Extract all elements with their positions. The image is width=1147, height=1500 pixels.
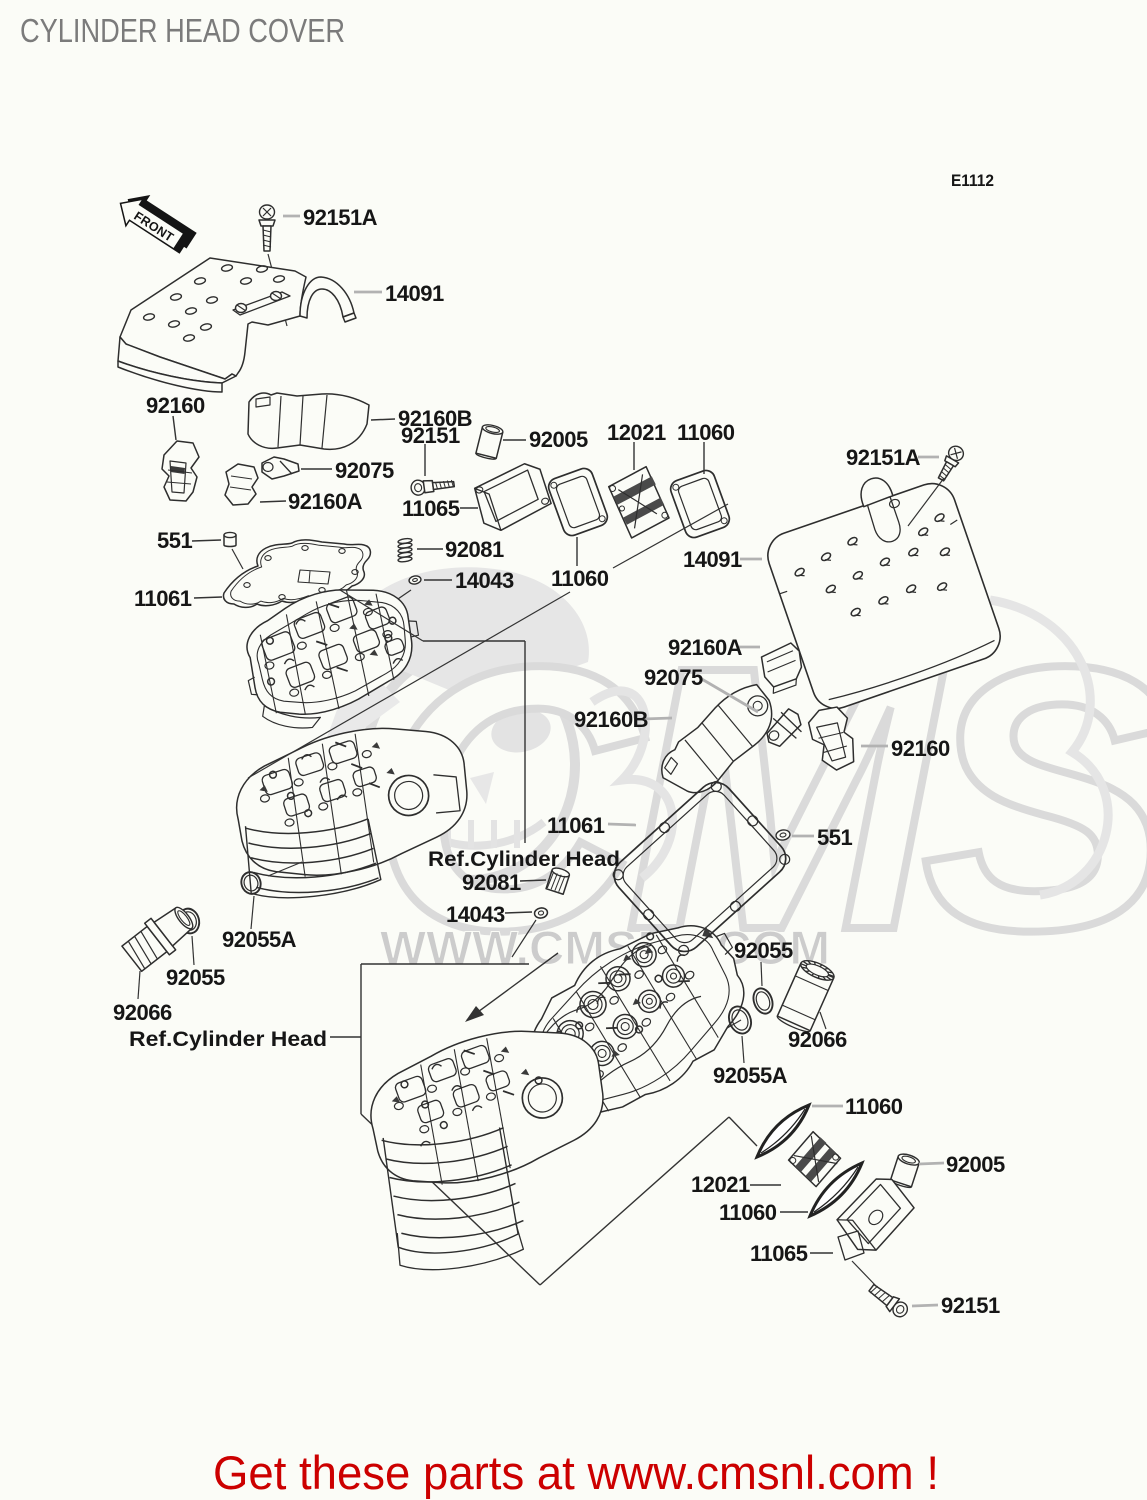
svg-text:92055A: 92055A bbox=[222, 927, 297, 952]
svg-text:92081: 92081 bbox=[462, 870, 521, 895]
svg-text:92151: 92151 bbox=[401, 423, 460, 448]
svg-text:92160A: 92160A bbox=[288, 489, 363, 514]
svg-text:11065: 11065 bbox=[402, 496, 460, 521]
svg-text:551: 551 bbox=[817, 825, 852, 850]
svg-text:92055: 92055 bbox=[734, 938, 793, 963]
svg-text:92005: 92005 bbox=[946, 1152, 1005, 1177]
svg-text:92066: 92066 bbox=[113, 1000, 172, 1025]
svg-text:E1112: E1112 bbox=[951, 171, 994, 190]
svg-text:14043: 14043 bbox=[455, 568, 514, 593]
svg-text:92055A: 92055A bbox=[713, 1063, 788, 1088]
svg-text:92160B: 92160B bbox=[574, 707, 648, 732]
svg-text:92151: 92151 bbox=[941, 1293, 1000, 1318]
svg-text:Ref.Cylinder Head: Ref.Cylinder Head bbox=[129, 1027, 327, 1051]
svg-text:11065: 11065 bbox=[750, 1241, 808, 1266]
svg-text:92160A: 92160A bbox=[668, 635, 743, 660]
svg-text:11060: 11060 bbox=[677, 420, 735, 445]
svg-text:Ref.Cylinder Head: Ref.Cylinder Head bbox=[428, 847, 620, 871]
svg-text:CYLINDER HEAD COVER: CYLINDER HEAD COVER bbox=[20, 12, 345, 49]
svg-text:11060: 11060 bbox=[551, 566, 609, 591]
svg-text:Get these parts at www.cmsnl.c: Get these parts at www.cmsnl.com ! bbox=[213, 1446, 939, 1499]
svg-text:92055: 92055 bbox=[166, 965, 225, 990]
svg-text:92075: 92075 bbox=[644, 665, 703, 690]
svg-text:11060: 11060 bbox=[719, 1200, 777, 1225]
svg-text:92066: 92066 bbox=[788, 1027, 847, 1052]
svg-text:92075: 92075 bbox=[335, 458, 394, 483]
svg-text:12021: 12021 bbox=[607, 420, 666, 445]
svg-text:92151A: 92151A bbox=[303, 205, 378, 230]
svg-text:14091: 14091 bbox=[683, 547, 742, 572]
svg-text:92151A: 92151A bbox=[846, 445, 921, 470]
svg-text:551: 551 bbox=[157, 528, 192, 553]
svg-text:92081: 92081 bbox=[445, 537, 504, 562]
svg-text:11061: 11061 bbox=[547, 813, 605, 838]
svg-text:11060: 11060 bbox=[845, 1094, 903, 1119]
svg-text:92160: 92160 bbox=[146, 393, 205, 418]
svg-text:12021: 12021 bbox=[691, 1172, 750, 1197]
svg-text:11061: 11061 bbox=[134, 586, 192, 611]
svg-text:92005: 92005 bbox=[529, 427, 588, 452]
svg-text:14091: 14091 bbox=[385, 281, 444, 306]
svg-text:92160: 92160 bbox=[891, 736, 950, 761]
svg-text:14043: 14043 bbox=[446, 902, 505, 927]
